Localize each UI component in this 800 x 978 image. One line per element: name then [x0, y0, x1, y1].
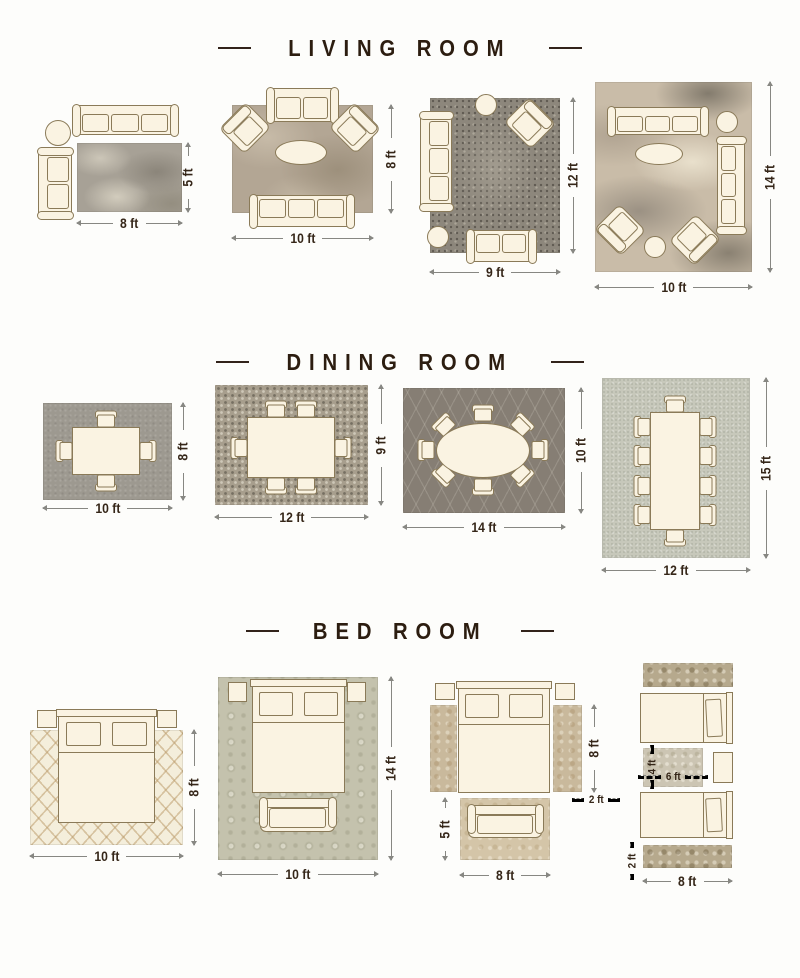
dimension-line — [696, 570, 750, 571]
sofa-cushion — [721, 173, 737, 198]
dimension-line — [460, 875, 489, 876]
sofa-cushion — [502, 234, 526, 254]
dimension-label: 10 ft — [290, 231, 315, 246]
dimension-line — [146, 223, 182, 224]
sofa-cushion — [288, 199, 315, 219]
title-dash — [218, 47, 251, 50]
width-dimension: 14 ft — [403, 520, 565, 534]
dining-chair — [700, 475, 717, 497]
dining-chair — [700, 504, 717, 526]
dining-table — [247, 417, 335, 478]
dining-chair — [335, 437, 352, 459]
dimension-line — [391, 790, 392, 860]
duvet-fold — [252, 722, 345, 723]
loveseat-sofa — [267, 88, 337, 122]
dimension-line — [602, 570, 656, 571]
title-dash — [246, 630, 279, 633]
dining-chair — [634, 504, 651, 526]
pillow — [304, 692, 338, 716]
sofa-arm — [466, 229, 475, 264]
dining-chair — [700, 445, 717, 467]
dimension-label: 6 ft — [666, 771, 681, 783]
sofa-cushion — [47, 157, 69, 182]
dining-chair — [472, 479, 494, 496]
living-layout-10x14: 10 ft 14 ft — [590, 80, 795, 310]
bench-arm — [328, 797, 337, 829]
height-dimension: 8 ft — [175, 403, 191, 500]
sofa-arm — [528, 229, 537, 264]
sofa-cushion — [82, 114, 109, 132]
nightstand — [228, 682, 247, 702]
bedroom-layout-10x14: 10 ft 14 ft — [200, 660, 405, 905]
pillow — [112, 722, 147, 746]
middle-rug-width-dimension: 6 ft — [638, 770, 708, 784]
dimension-line — [445, 798, 446, 808]
duvet-fold — [703, 792, 704, 838]
dimension-line — [77, 223, 113, 224]
sofa-arm — [346, 194, 355, 229]
sofa-cushion — [429, 176, 449, 201]
sofa-cushion — [317, 199, 344, 219]
bed — [58, 710, 155, 823]
sofa — [420, 112, 452, 210]
sofa-cushions — [429, 121, 449, 201]
dimension-label: 2 ft — [589, 794, 604, 806]
dimension-line — [643, 881, 671, 882]
pillow — [509, 694, 542, 718]
dimension-line — [322, 238, 373, 239]
sofa-arm — [72, 104, 81, 137]
dining-table — [650, 412, 700, 530]
dimension-line — [381, 385, 382, 424]
sofa-arm — [419, 203, 454, 212]
dimension-line — [232, 238, 283, 239]
bench-arm — [467, 804, 476, 835]
height-dimension: 8 ft — [383, 105, 399, 213]
dimension-line — [30, 856, 87, 857]
dining-layout-12x9: 12 ft 9 ft — [210, 380, 400, 540]
sofa-arm — [37, 211, 74, 220]
dimension-line — [581, 472, 582, 513]
dimension-label: 10 ft — [574, 438, 589, 463]
side-table — [644, 236, 666, 258]
pillow — [259, 692, 293, 716]
dining-chair — [634, 445, 651, 467]
duvet-fold — [703, 693, 704, 743]
dimension-label: 8 ft — [384, 150, 399, 168]
side-table — [427, 226, 449, 248]
dimension-line — [630, 874, 634, 880]
dimension-line — [127, 508, 172, 509]
dining-chair — [418, 439, 435, 461]
dimension-label: 12 ft — [664, 563, 689, 578]
dimension-label: 10 ft — [95, 501, 120, 516]
runner-height-dimension: 8 ft — [586, 705, 602, 792]
runner-width-dimension: 8 ft — [643, 874, 732, 888]
bedroom-layout-twin-beds: 4 ft 6 ft 2 ft 8 ft — [630, 655, 795, 905]
dining-chair — [664, 530, 686, 547]
sofa-cushion — [617, 116, 643, 132]
sofa-cushion — [141, 114, 168, 132]
pillow — [705, 699, 723, 738]
dimension-line — [511, 272, 560, 273]
bench-cushion — [269, 808, 326, 828]
title-dash — [521, 630, 554, 633]
dimension-label: 8 ft — [176, 442, 191, 460]
dimension-line — [685, 775, 708, 779]
dimension-line — [194, 730, 195, 766]
dimension-line — [188, 143, 189, 156]
sofa — [608, 107, 707, 135]
sofa-arm — [170, 104, 179, 137]
title-dash — [551, 361, 584, 364]
dimension-label: 5 ft — [181, 168, 196, 186]
rug-size-guide: LIVING ROOM 8 ft 5 ft — [0, 0, 800, 978]
side-table — [45, 120, 71, 146]
dimension-line — [572, 798, 584, 802]
sofa-cushion — [429, 121, 449, 146]
dining-chair — [56, 440, 73, 462]
sofa-cushions — [617, 116, 698, 132]
sofa-cushion — [721, 199, 737, 224]
headboard — [456, 681, 552, 689]
sofa-cushion — [476, 234, 500, 254]
runner-rug — [643, 845, 732, 868]
dimension-label: 8 ft — [120, 216, 138, 231]
dimension-label: 2 ft — [626, 854, 638, 869]
section-title-text: BED ROOM — [313, 618, 488, 645]
twin-bed — [640, 693, 732, 743]
sofa-arm — [266, 87, 275, 124]
sofa-arm — [607, 106, 616, 137]
dimension-line — [318, 874, 378, 875]
dimension-line — [581, 388, 582, 429]
bench-cushion — [477, 815, 533, 834]
bench-arm — [259, 797, 268, 829]
dimension-line — [381, 467, 382, 506]
sofa-cushions — [259, 199, 344, 219]
width-dimension: 12 ft — [215, 510, 368, 524]
dimension-line — [188, 199, 189, 212]
dimension-line — [194, 809, 195, 845]
bedroom-layout-10x8: 10 ft 8 ft — [20, 700, 215, 870]
rug-8x5 — [77, 143, 182, 212]
pillow — [66, 722, 101, 746]
width-dimension: 10 ft — [218, 867, 378, 881]
dimension-label: 12 ft — [279, 510, 304, 525]
dimension-line — [595, 287, 654, 288]
runner-rug — [553, 705, 582, 792]
sofa-cushions — [721, 146, 737, 224]
twin-bed — [640, 792, 732, 838]
runner-rug — [430, 705, 457, 792]
dining-chair — [140, 440, 157, 462]
dimension-label: 14 ft — [384, 756, 399, 781]
headboard — [56, 709, 157, 717]
section-title-bedroom: BED ROOM — [0, 617, 800, 645]
bed — [252, 680, 345, 793]
dining-chair — [95, 475, 117, 492]
chaise-sofa — [38, 148, 72, 218]
dining-chair — [265, 401, 287, 418]
nightstand — [435, 683, 455, 700]
width-dimension: 9 ft — [430, 265, 560, 279]
height-dimension: 14 ft — [762, 82, 778, 272]
coffee-table — [275, 140, 327, 165]
duvet-fold — [458, 724, 550, 725]
dimension-line — [504, 527, 565, 528]
width-dimension: 10 ft — [595, 280, 752, 294]
sofa-cushion — [259, 199, 286, 219]
dimension-line — [766, 490, 767, 559]
dining-layout-14x10: 14 ft 10 ft — [400, 380, 595, 545]
dimension-label: 10 ft — [661, 280, 686, 295]
section-title-text: LIVING ROOM — [288, 35, 511, 62]
sofa-arm — [700, 106, 709, 137]
dining-chair — [231, 437, 248, 459]
dimension-line — [573, 197, 574, 253]
sofa-cushion — [721, 146, 737, 171]
dimension-line — [594, 705, 595, 727]
width-dimension: 10 ft — [43, 501, 172, 515]
headboard — [726, 791, 733, 839]
dining-layout-12x15: 12 ft 15 ft — [595, 375, 795, 590]
oval-dining-table — [436, 423, 530, 478]
dimension-label: 14 ft — [472, 520, 497, 535]
dimension-line — [521, 875, 550, 876]
dining-chair — [634, 475, 651, 497]
dimension-label: 8 ft — [587, 739, 602, 757]
dimension-line — [430, 272, 479, 273]
dimension-line — [215, 517, 272, 518]
width-dimension: 12 ft — [602, 563, 750, 577]
sofa-cushion — [303, 97, 328, 119]
dining-chair — [295, 478, 317, 495]
dimension-line — [650, 745, 654, 754]
sofa-cushion — [672, 116, 698, 132]
bench — [260, 798, 335, 832]
sofa-arm — [37, 147, 74, 156]
sofa-cushion — [47, 184, 69, 209]
loveseat-sofa — [467, 230, 535, 262]
height-dimension: 15 ft — [758, 378, 774, 558]
sofa-cushion — [429, 148, 449, 173]
sofa-arm — [716, 136, 747, 145]
dimension-line — [218, 874, 278, 875]
headboard — [250, 679, 347, 687]
bench — [468, 805, 542, 838]
dimension-line — [704, 881, 732, 882]
sofa — [717, 137, 745, 233]
runner-width-dimension: 2 ft — [572, 793, 620, 807]
runner-height-dimension: 2 ft — [624, 842, 640, 871]
dimension-line — [391, 105, 392, 138]
sofa-arm — [716, 226, 747, 235]
dining-chair — [265, 478, 287, 495]
dimension-line — [608, 798, 620, 802]
height-dimension: 9 ft — [373, 385, 389, 505]
dimension-line — [630, 842, 634, 848]
sofa-cushions — [82, 114, 168, 132]
dimension-line — [770, 199, 771, 273]
pillow — [465, 694, 498, 718]
title-dash — [216, 361, 249, 364]
height-dimension: 12 ft — [565, 98, 581, 253]
sofa-cushions — [47, 157, 69, 209]
dimension-label: 8 ft — [678, 874, 696, 889]
dimension-line — [573, 98, 574, 154]
runner-rug — [643, 663, 733, 687]
dimension-line — [594, 770, 595, 792]
dimension-line — [403, 527, 464, 528]
width-dimension: 10 ft — [30, 849, 183, 863]
bedroom-layout-runners: 8 ft 2 ft 5 ft 8 ft — [420, 665, 625, 895]
sofa-cushions — [476, 234, 526, 254]
duvet-fold — [58, 752, 155, 753]
dimension-line — [693, 287, 752, 288]
sofa-cushion — [645, 116, 671, 132]
dimension-label: 5 ft — [438, 820, 453, 838]
dimension-label: 15 ft — [759, 456, 774, 481]
nightstand — [347, 682, 366, 702]
dining-chair — [472, 405, 494, 422]
coffee-table — [635, 143, 683, 165]
dimension-line — [638, 775, 661, 779]
dimension-label: 9 ft — [486, 265, 504, 280]
nightstand — [555, 683, 575, 700]
dimension-line — [183, 403, 184, 430]
dimension-line — [183, 473, 184, 500]
dining-chair — [532, 439, 549, 461]
sofa-cushions — [276, 97, 328, 119]
width-dimension: 8 ft — [77, 216, 182, 230]
nightstand — [157, 710, 177, 728]
section-title-text: DINING ROOM — [287, 349, 514, 376]
dimension-line — [126, 856, 183, 857]
living-layout-9x12: 9 ft 12 ft — [410, 90, 590, 290]
nightstand — [713, 752, 733, 783]
dining-layout-10x8: 10 ft 8 ft — [30, 395, 210, 525]
bottom-rug-width-dimension: 8 ft — [460, 868, 550, 882]
dimension-line — [770, 82, 771, 156]
dining-chair — [664, 396, 686, 413]
living-layout-10x8: 10 ft 8 ft — [215, 88, 410, 253]
dimension-label: 14 ft — [763, 165, 778, 190]
dining-chair — [700, 416, 717, 438]
dimension-line — [311, 517, 368, 518]
living-layout-8x5: 8 ft 5 ft — [30, 95, 230, 245]
sofa-arm — [419, 111, 454, 120]
sofa-cushion — [111, 114, 138, 132]
sofa — [73, 105, 177, 135]
nightstand — [37, 710, 57, 728]
title-dash — [549, 47, 582, 50]
dining-chair — [95, 411, 117, 428]
dimension-label: 10 ft — [286, 867, 311, 882]
section-title-living: LIVING ROOM — [0, 34, 800, 62]
section-title-dining: DINING ROOM — [0, 348, 800, 376]
dining-chair — [295, 401, 317, 418]
dining-table — [72, 427, 140, 475]
dimension-line — [391, 181, 392, 214]
width-dimension: 10 ft — [232, 231, 373, 245]
sofa-arm — [249, 194, 258, 229]
dimension-label: 9 ft — [374, 436, 389, 454]
side-table — [716, 111, 738, 133]
dimension-label: 12 ft — [566, 163, 581, 188]
sofa-cushion — [276, 97, 301, 119]
sofa — [250, 195, 353, 227]
pillow — [705, 798, 723, 833]
height-dimension: 5 ft — [180, 143, 196, 212]
height-dimension: 14 ft — [383, 677, 399, 860]
dimension-line — [391, 677, 392, 747]
dimension-label: 8 ft — [496, 868, 514, 883]
bed — [458, 682, 550, 793]
dimension-line — [445, 851, 446, 861]
headboard — [726, 692, 733, 744]
side-table — [475, 94, 497, 116]
dimension-line — [766, 378, 767, 447]
bottom-rug-height-dimension: 5 ft — [437, 798, 453, 860]
dimension-label: 10 ft — [94, 849, 119, 864]
height-dimension: 10 ft — [573, 388, 589, 513]
dimension-line — [43, 508, 88, 509]
dining-chair — [634, 416, 651, 438]
bench-arm — [535, 804, 544, 835]
